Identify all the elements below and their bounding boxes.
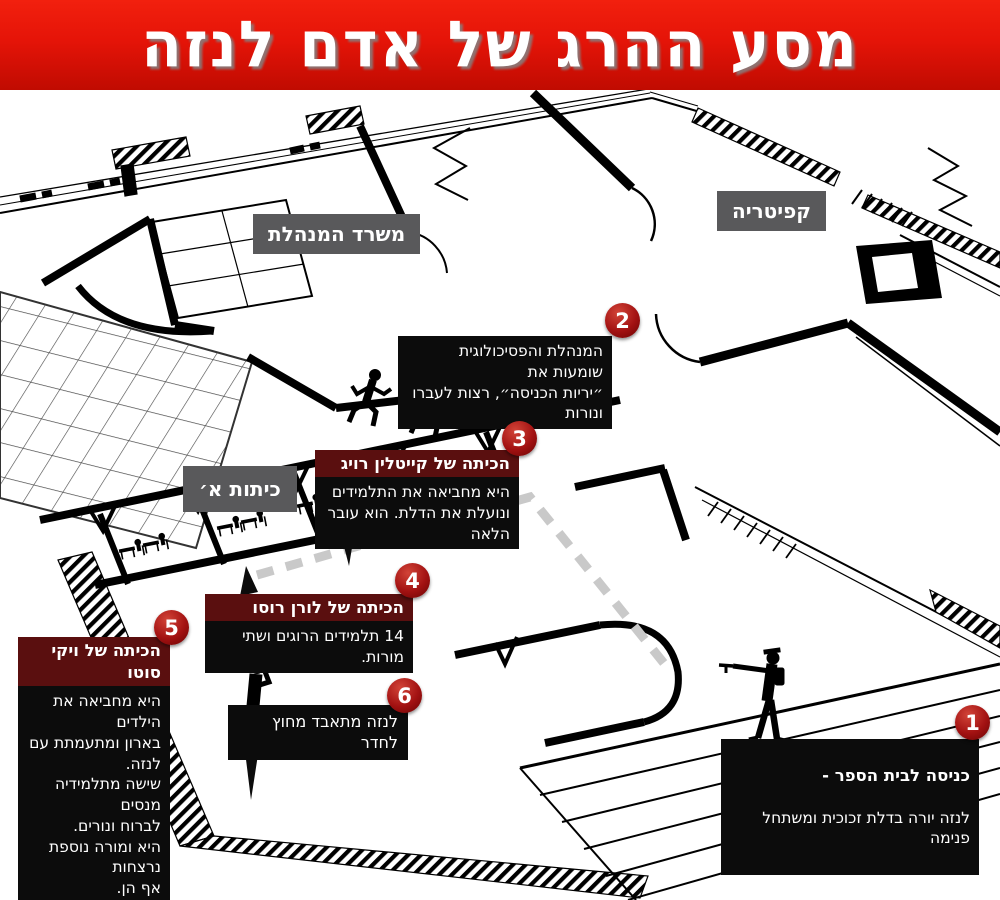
room-label-first-grade: כיתות א׳ [183, 466, 297, 512]
room-label-cafeteria: קפיטריה [717, 191, 826, 231]
callout-body: לנזה יורה בדלת זכוכית ומשתחל פנימה [730, 808, 970, 850]
step-badge-1: 1 [955, 705, 990, 740]
callout-1-entrance: כניסה לבית הספר - לנזה יורה בדלת זכוכית … [721, 739, 979, 875]
page-title: מסע ההרג של אדם לנזה [141, 8, 859, 82]
callout-3-roig-class: הכיתה של קייטלין רויג היא מחביאה את התלמ… [315, 450, 519, 549]
desk-icon [240, 510, 266, 531]
step-badge-4: 4 [395, 563, 430, 598]
callout-4-rousseau-class: הכיתה של לורן רוסו 14 תלמידים הרוגים ושת… [205, 594, 413, 673]
callout-body: היא מחביאה את התלמידים ונועלת את הדלת. ה… [315, 477, 519, 549]
callout-body: המנהלת והפסיכולוגית שומעות את ״יריות הכנ… [398, 336, 612, 429]
callout-title: הכיתה של קייטלין רויג [315, 450, 519, 477]
step-badge-3: 3 [502, 421, 537, 456]
room-label-principal-office: משרד המנהלת [253, 214, 420, 254]
step-badge-2: 2 [605, 303, 640, 338]
step-badge-6: 6 [387, 678, 422, 713]
callout-body: היא מחביאה את הילדים בארון ומתעמתת עם לנ… [18, 686, 170, 900]
infographic: מסע ההרג של אדם לנזה משרד המנהלת קפיטריה… [0, 0, 1000, 900]
callout-title: הכיתה של ויקי סוטו [18, 637, 170, 686]
runner-icon [349, 370, 391, 427]
callout-body: 14 תלמידים הרוגים ושתי מורות. [205, 621, 413, 673]
step-badge-5: 5 [154, 610, 189, 645]
callout-2-principal: המנהלת והפסיכולוגית שומעות את ״יריות הכנ… [398, 336, 612, 429]
stage-block [856, 240, 942, 304]
callout-title: הכיתה של לורן רוסו [205, 594, 413, 621]
callout-body: לנזה מתאבד מחוץ לחדר [228, 705, 408, 760]
desk-icon [118, 539, 144, 560]
callout-title: כניסה לבית הספר - [730, 765, 970, 787]
callout-6-suicide: לנזה מתאבד מחוץ לחדר [228, 705, 408, 760]
shooter-icon [719, 648, 785, 741]
desk-icon [216, 516, 242, 537]
title-banner: מסע ההרג של אדם לנזה [0, 0, 1000, 90]
callout-5-soto-class: הכיתה של ויקי סוטו היא מחביאה את הילדים … [18, 637, 170, 900]
